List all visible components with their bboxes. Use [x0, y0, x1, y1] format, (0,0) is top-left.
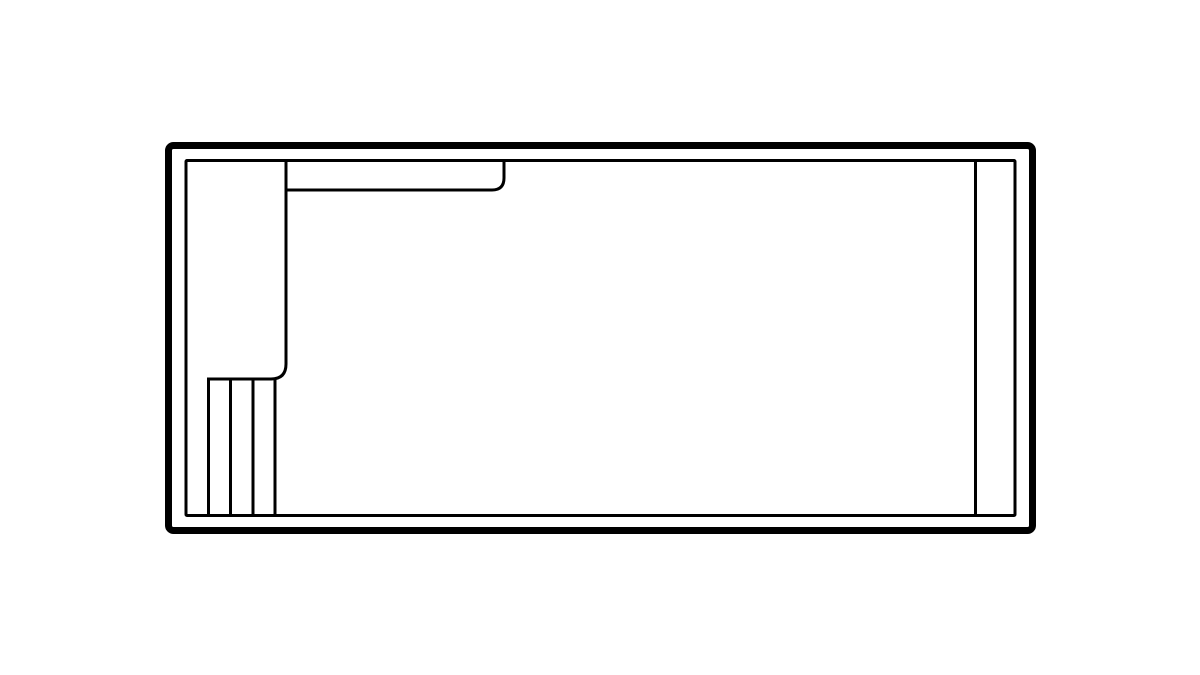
diagram-stage: [0, 0, 1200, 675]
pool-plan-diagram: [0, 0, 1200, 675]
page: { "diagram": { "title": "rectangular-poo…: [0, 0, 1200, 675]
top-bench-edge: [286, 161, 504, 191]
pool-waterline-rect: [186, 161, 1015, 516]
pool-outer-coping-rect: [169, 146, 1033, 531]
